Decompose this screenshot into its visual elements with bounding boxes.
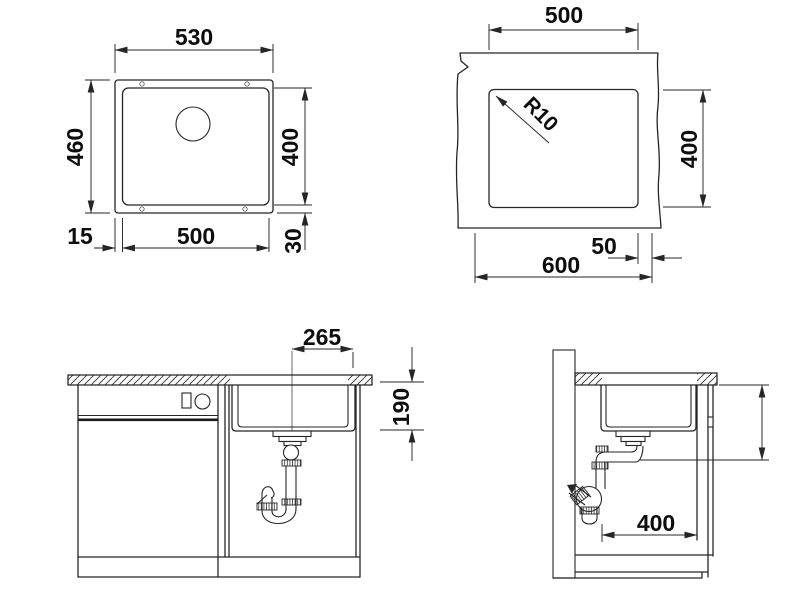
bowl-outer-side [601,385,696,431]
cutout-outline [489,90,638,208]
mounting-hole [140,82,144,86]
dim-top-width: 530 [175,24,213,50]
dim-bowl-width: 500 [177,223,215,249]
worktop-outline [456,53,661,228]
dim-cutout-depth: 400 [676,130,702,168]
mounting-hole [243,207,247,211]
dim-cutout-width: 500 [545,2,583,28]
dim-cabinet-width: 600 [542,252,580,278]
cutout-view-drawing: 500 R10 400 50 600 [456,2,711,283]
drain-trap-assembly [257,431,311,524]
worktop-section-hatch [68,375,230,385]
worktop-section-hatch [697,373,717,385]
mounting-hole [140,207,144,211]
top-view-drawing: 530 460 400 30 15 500 [62,24,312,254]
drawing-sheet: 530 460 400 30 15 500 500 R10 400 [0,0,800,600]
bowl-inner-side [606,385,691,427]
dim-edge-offset: 50 [591,233,617,259]
sink-outer-rim [115,80,273,213]
dim-drain-offset: 265 [303,324,342,350]
sink-bowl-outline [123,88,270,205]
left-cabinet [78,385,218,577]
side-view-drawing: 400 [553,350,769,578]
cabinet-base [553,555,713,578]
dim-left-offset: 15 [67,223,93,249]
dim-corner-radius: R10 [519,93,563,137]
control-button [182,393,191,408]
front-view-drawing: 265 190 [68,324,424,577]
cabinet-front-panel [697,385,713,577]
dim-bottom-offset: 30 [280,228,306,254]
dim-bowl-length: 400 [637,510,675,536]
dim-bowl-depth: 190 [388,388,414,426]
wall-section [553,350,575,578]
technical-drawing-canvas: 530 460 400 30 15 500 500 R10 400 [0,0,800,600]
mounting-hole [245,82,249,86]
worktop-section-hatch [575,373,602,385]
drain-hole [176,107,210,141]
bowl-outer [232,385,355,431]
bowl-inner [238,385,348,427]
panel-seam [708,417,713,427]
sink-cabinet [225,385,360,577]
worktop-section-hatch [348,375,372,385]
control-knob [195,394,210,409]
dim-outer-height: 460 [62,128,88,166]
plinth [78,557,360,577]
dim-bowl-height: 400 [277,128,303,166]
